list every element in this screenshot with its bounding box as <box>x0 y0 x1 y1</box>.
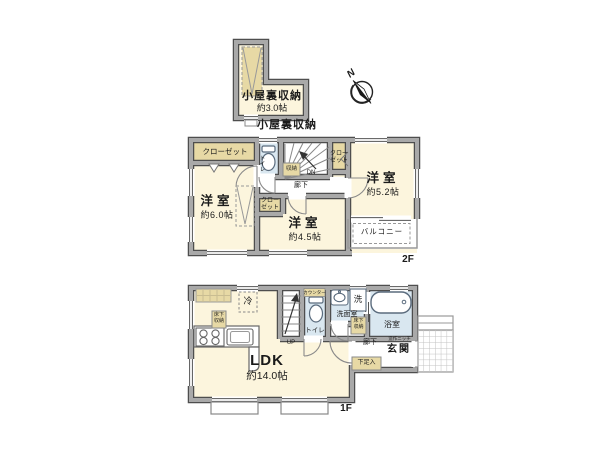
shutter-window-boxes <box>211 402 328 414</box>
bedroom-center-label: 洋室 <box>276 216 334 231</box>
attic-room-label: 小屋裏収納 <box>236 90 308 103</box>
floor2-label: 2F <box>399 254 417 266</box>
bedroom-left-label: 洋室 <box>189 194 245 209</box>
toilet-1f-label: トイレ <box>302 327 328 335</box>
bedroom-right-label: 洋室 <box>352 171 414 186</box>
attic-caption: 小屋裏収納 <box>250 119 324 132</box>
closet-top-left-label: クローゼット <box>197 148 253 157</box>
attic-room-size: 約3.0帖 <box>236 103 308 114</box>
hallway-1f-label: 廊下 <box>356 339 384 347</box>
bathtub-icon <box>371 292 411 313</box>
toilet-counter-label: カウンター <box>302 290 327 295</box>
shoe-cabinet-label: 下足入 <box>353 360 380 367</box>
washbasin-icon <box>331 290 348 305</box>
underfloor-storage-hall-label: 床下収納 <box>353 319 364 331</box>
hallway-2f-label: 廊下 <box>288 182 314 190</box>
stove-icon <box>196 328 224 346</box>
refrigerator-label: 冷 <box>239 296 257 307</box>
toilet-2f-label: トイレ <box>258 148 264 178</box>
compass-north-label: N <box>345 67 358 81</box>
toilet-1f-icon <box>309 297 323 322</box>
niche-label: 造作ニッチ <box>383 336 416 341</box>
bedroom-left-size: 約6.0帖 <box>189 210 245 221</box>
ldk-size: 約14.0帖 <box>231 370 303 382</box>
compass-icon: N <box>345 67 372 104</box>
ldk-label: LDK <box>231 352 303 370</box>
stairs-up-label: UP <box>282 340 300 347</box>
underfloor-storage-kitchen-label: 床下収納 <box>214 313 225 325</box>
kitchen-cupboard <box>196 289 231 302</box>
bedroom-center-size: 約4.5帖 <box>276 232 334 243</box>
entrance-porch <box>418 316 453 372</box>
floor-plan-page: N <box>0 0 600 450</box>
balcony-label: バルコニー <box>350 228 414 237</box>
entrance-label: 玄関 <box>382 344 416 356</box>
storage-2f-label: 収納 <box>283 166 300 172</box>
kitchen-sink-icon <box>227 329 253 345</box>
floor1-label: 1F <box>337 403 355 415</box>
stairs-down-label: DN <box>302 170 320 177</box>
washer-label: 洗 <box>350 294 366 304</box>
bathroom-label: 浴室 <box>370 320 414 329</box>
bedroom-right-size: 約5.2帖 <box>352 187 414 198</box>
closet-middle-label: クローゼット <box>260 198 280 212</box>
closet-top-right-label: クローゼット <box>330 151 348 165</box>
